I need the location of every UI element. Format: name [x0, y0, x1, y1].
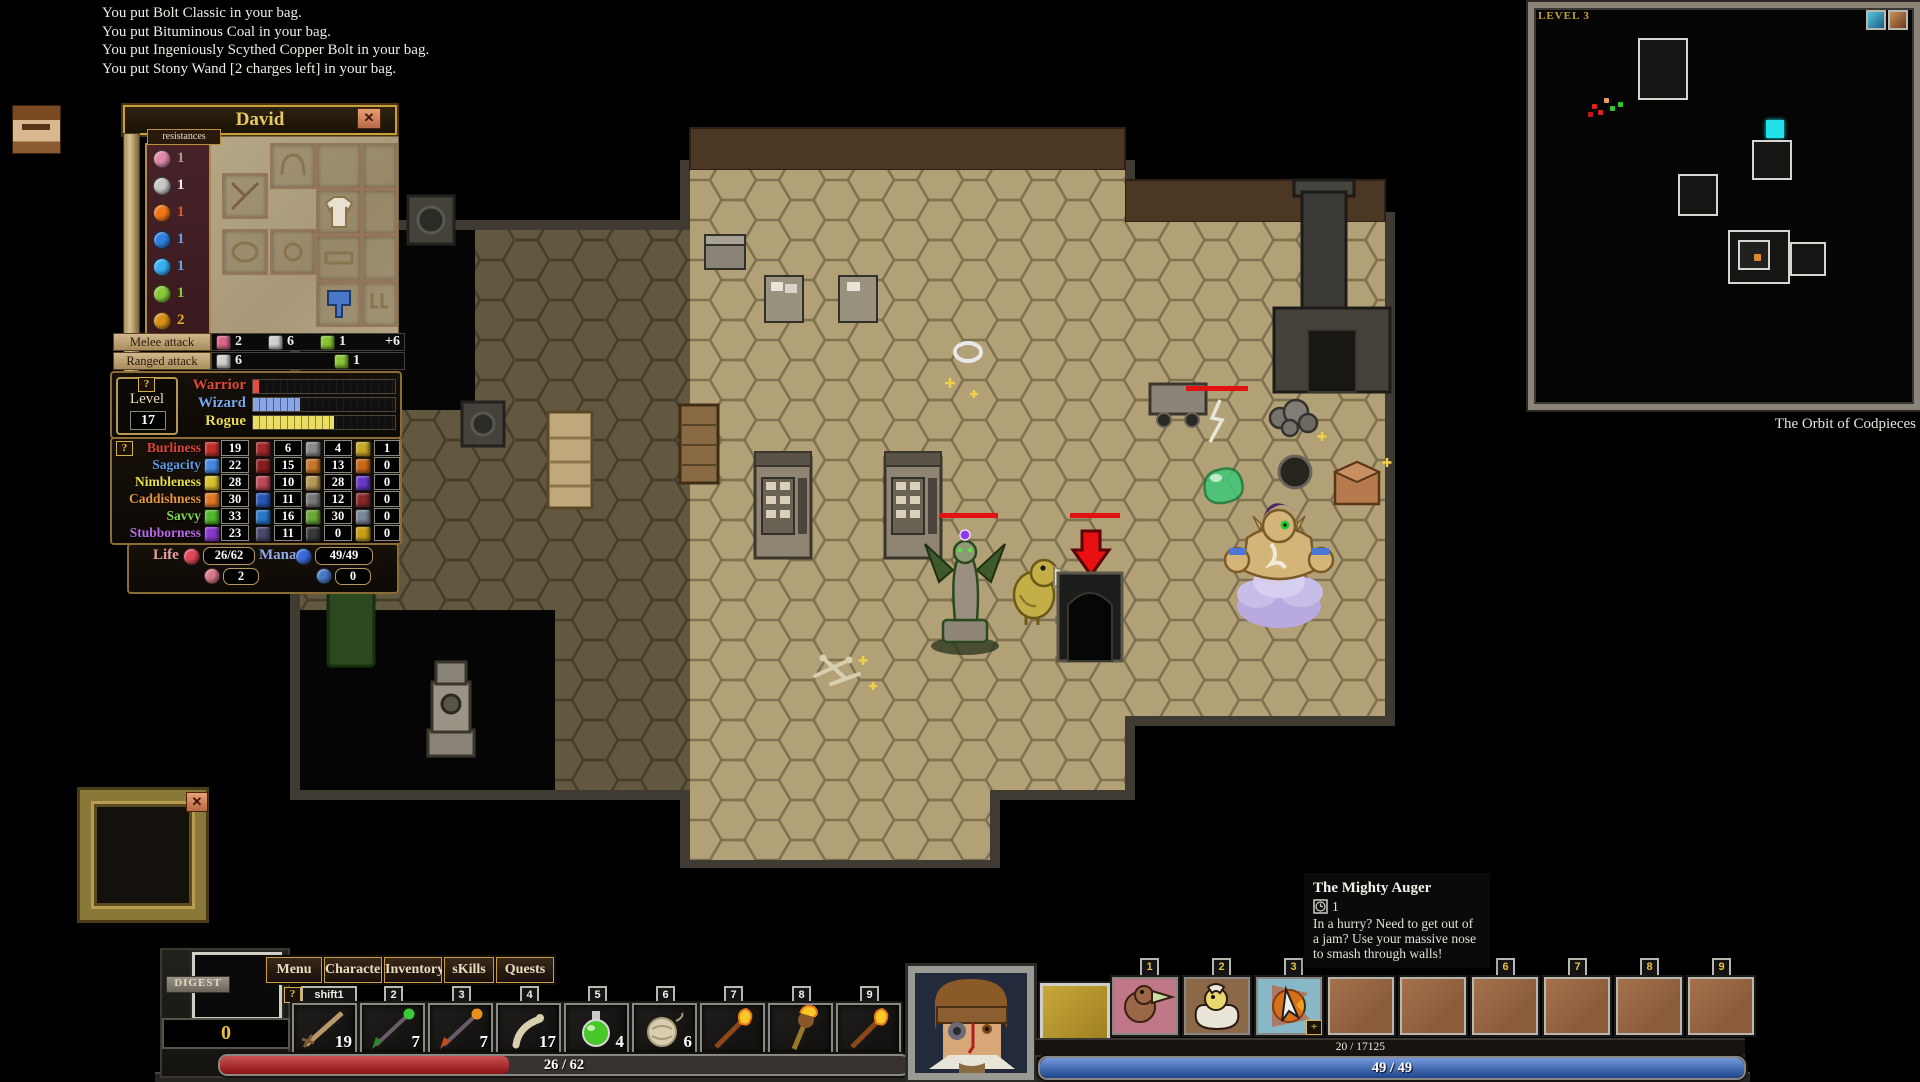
stat-caddishness-label: Caddishness — [116, 491, 201, 507]
stat-burliness-label: Burliness — [116, 440, 201, 456]
level-label: Level — [118, 391, 176, 408]
character-panel: David ✕ resistances — [105, 103, 403, 595]
belt-help-button[interactable]: ? — [284, 987, 301, 1003]
skill-slot-8[interactable] — [1616, 977, 1682, 1035]
life-mana-block: Life 26/62 Mana 49/49 2 0 — [127, 543, 399, 594]
skill-tab-7[interactable]: 7 — [1568, 958, 1587, 977]
life-label: Life — [153, 547, 179, 564]
desk — [705, 235, 745, 269]
floor-grate — [1279, 456, 1311, 488]
wall-machine[interactable] — [408, 196, 454, 244]
resistance-row: 1 — [147, 172, 209, 199]
minimap-player-marker — [1766, 120, 1784, 138]
belt-slot-1[interactable]: 19 — [292, 1003, 357, 1055]
belt-slot[interactable] — [316, 235, 362, 281]
shield-slot[interactable] — [222, 229, 268, 275]
acidic-resist-icon — [153, 285, 171, 303]
tooltip-count: 1 — [1332, 899, 1339, 914]
acidic-damage-icon — [334, 354, 349, 369]
moss-patch — [328, 588, 374, 666]
skill-slot-auger[interactable] — [1112, 977, 1178, 1035]
portrait-face — [915, 973, 1027, 1073]
desk-with-papers — [839, 276, 877, 322]
shorts-item — [318, 283, 360, 325]
skill-tab-9[interactable]: 9 — [1712, 958, 1731, 977]
skill-slot-hatchling[interactable] — [1184, 977, 1250, 1035]
skill-tooltip: The Mighty Auger 1 In a hurry? Need to g… — [1303, 872, 1491, 969]
resistances-panel: 1 1 1 1 1 1 2 — [145, 143, 211, 343]
level-class-block: ? Level 17 Warrior Wizard Rogue — [110, 371, 402, 439]
minimap-enemy-dot — [1598, 110, 1603, 115]
wall-machine[interactable] — [462, 402, 504, 446]
character-button[interactable]: Character — [324, 957, 382, 983]
vending-machine[interactable] — [885, 452, 941, 558]
health-bar: 26 / 62 — [218, 1054, 910, 1076]
burliness-icon — [204, 441, 220, 457]
level-help-button[interactable]: ? — [138, 377, 155, 392]
secondary-stat-icon — [305, 441, 321, 457]
belt-slot-6[interactable]: 6 — [632, 1003, 697, 1055]
minimap-enemy-dot — [1588, 112, 1593, 117]
weapon-slot[interactable] — [222, 173, 268, 219]
minimap-room — [1678, 174, 1718, 216]
player-portrait[interactable] — [908, 966, 1034, 1080]
secondary-stat-icon — [255, 526, 271, 542]
transmutative-resist-icon — [153, 312, 171, 330]
skill-tab-8[interactable]: 8 — [1640, 958, 1659, 977]
class-wizard-xp-bar — [252, 397, 396, 412]
close-icon[interactable]: ✕ — [357, 108, 381, 129]
secondary-stat-icon — [255, 441, 271, 457]
minimap-zoom-button[interactable] — [1866, 10, 1886, 30]
menu-button[interactable]: Menu — [266, 957, 322, 983]
class-warrior-xp-bar — [252, 379, 396, 394]
boots-slot[interactable] — [362, 281, 398, 327]
ring-slot[interactable] — [270, 229, 316, 275]
secondary-stat-value: 0 — [374, 508, 400, 524]
mighty-auger-skill-icon — [1114, 979, 1176, 1033]
minimap-room — [1790, 242, 1826, 276]
secondary-stat-icon — [305, 492, 321, 508]
secondary-stat-icon — [305, 526, 321, 542]
stat-nimbleness-label: Nimbleness — [116, 474, 201, 490]
acidic-damage-icon — [320, 335, 335, 350]
altar-machine[interactable] — [428, 662, 474, 756]
chest-slot[interactable] — [316, 189, 362, 235]
tooltip-body: In a hurry? Need to get out of a jam? Us… — [1313, 916, 1481, 961]
secondary-stat-icon — [355, 509, 371, 525]
secondary-stat-icon — [305, 475, 321, 491]
game-viewport[interactable] — [250, 100, 1550, 890]
digest-counter: 0 — [162, 1018, 290, 1049]
mana-value: 49/49 — [315, 547, 373, 565]
secondary-stat-value: 6 — [274, 440, 302, 456]
belt-slot-2[interactable]: 7 — [360, 1003, 425, 1055]
shirt-item — [318, 191, 360, 233]
minimap-mode-button[interactable] — [1888, 10, 1908, 30]
skills-button[interactable]: sKills — [444, 957, 494, 983]
mana-label: Mana — [259, 547, 297, 564]
class-rogue-label: Rogue — [178, 413, 246, 430]
secondary-stat-value: 30 — [324, 508, 352, 524]
secondary-stat-value: 0 — [324, 525, 352, 541]
flaming-torch-item — [702, 1005, 763, 1053]
mana-regen-value: 0 — [335, 568, 371, 585]
minimap: LEVEL 3 — [1528, 2, 1920, 410]
mana-star-icon — [295, 548, 312, 565]
stat-stubborness-label: Stubborness — [116, 525, 201, 541]
class-wizard-label: Wizard — [178, 395, 246, 412]
minimap-item-dot — [1618, 102, 1623, 107]
secondary-stat-value: 12 — [324, 491, 352, 507]
skill-slot-7[interactable] — [1544, 977, 1610, 1035]
resistance-row: 1 — [147, 226, 209, 253]
piercing-damage-icon — [268, 335, 283, 350]
flaming-torch-item — [838, 1005, 899, 1053]
stat-savvy-value: 33 — [221, 508, 249, 524]
ranged-attack-label: Ranged attack — [113, 352, 211, 370]
stat-sagacity-value: 22 — [221, 457, 249, 473]
sagacity-icon — [204, 458, 220, 474]
skill-slot-5[interactable] — [1400, 977, 1466, 1035]
minimap-caption: The Orbit of Codpieces — [1530, 416, 1916, 433]
quests-button[interactable]: Quests — [496, 957, 554, 983]
mana-bar-text: 49 / 49 — [1040, 1058, 1744, 1078]
crushing-damage-icon — [216, 335, 231, 350]
character-name: David — [236, 109, 285, 130]
melee-bonus: +6 — [385, 334, 400, 350]
desk-with-papers — [765, 276, 803, 322]
secondary-stat-icon — [305, 509, 321, 525]
stat-caddishness-value: 30 — [221, 491, 249, 507]
secondary-stat-value: 16 — [274, 508, 302, 524]
secondary-stat-value: 10 — [274, 474, 302, 490]
life-value: 26/62 — [203, 547, 255, 565]
level-value: 17 — [130, 411, 166, 430]
minimap-enemy-dot — [1592, 104, 1597, 109]
pants-slot[interactable] — [316, 281, 362, 327]
mana-regen-icon — [316, 568, 332, 584]
minimap-room — [1638, 38, 1688, 100]
nimbleness-icon — [204, 475, 220, 491]
stats-block: ? Burliness 19 Sagacity 22 Nimbleness 28… — [110, 437, 402, 545]
tan-door[interactable] — [548, 412, 592, 508]
stat-nimbleness-value: 28 — [221, 474, 249, 490]
secondary-stat-icon — [355, 458, 371, 474]
righteous-resist-icon — [153, 150, 171, 168]
skill-slot-9[interactable] — [1688, 977, 1754, 1035]
level-box: ? Level 17 — [116, 377, 178, 435]
secondary-stat-icon — [355, 526, 371, 542]
secondary-stat-icon — [255, 492, 271, 508]
secondary-stat-icon — [355, 441, 371, 457]
skill-tab-6[interactable]: 6 — [1496, 958, 1515, 977]
stat-burliness-value: 19 — [221, 440, 249, 456]
mana-bar: 49 / 49 — [1038, 1056, 1746, 1080]
life-regen-value: 2 — [223, 568, 259, 585]
jelly-monster[interactable] — [1205, 469, 1243, 504]
armor-slot[interactable] — [316, 143, 362, 189]
secondary-stat-value: 15 — [274, 457, 302, 473]
resistance-row: 1 — [147, 145, 209, 172]
secondary-stat-value: 0 — [374, 525, 400, 541]
close-icon[interactable]: ✕ — [186, 792, 208, 812]
tooltip-title: The Mighty Auger — [1313, 880, 1481, 897]
message-log: You put Bolt Classic in your bag. You pu… — [102, 4, 802, 78]
dark-doorway[interactable] — [1058, 573, 1122, 661]
secondary-stat-value: 11 — [274, 491, 302, 507]
cloak-slot[interactable] — [362, 189, 398, 235]
conflagratory-resist-icon — [153, 204, 171, 222]
heart-icon — [183, 548, 200, 565]
egg-hatch-skill-icon — [1186, 979, 1248, 1033]
secondary-stat-value: 1 — [374, 440, 400, 456]
minimap-item-dot — [1610, 106, 1615, 111]
secondary-stat-value: 0 — [374, 457, 400, 473]
secondary-stat-icon — [255, 458, 271, 474]
voltaic-resist-icon — [153, 258, 171, 276]
belt-slot-3[interactable]: 7 — [428, 1003, 493, 1055]
skill-slot-4[interactable] — [1328, 977, 1394, 1035]
digest-label: DIGEST — [166, 976, 230, 993]
hyperborean-resist-icon — [153, 231, 171, 249]
log-line: You put Stony Wand [2 charges left] in y… — [102, 60, 802, 79]
resistance-row: 2 — [147, 307, 209, 334]
skill-slot-active[interactable]: + — [1256, 977, 1322, 1035]
secondary-stat-value: 13 — [324, 457, 352, 473]
stat-stubborness-value: 23 — [221, 525, 249, 541]
secondary-stat-icon — [305, 458, 321, 474]
skill-tab-3[interactable]: 3 — [1284, 958, 1303, 977]
stubborness-icon — [204, 526, 220, 542]
wooden-door[interactable] — [680, 405, 718, 483]
secondary-stat-value: 4 — [324, 440, 352, 456]
minimap-level-label: LEVEL 3 — [1538, 10, 1590, 22]
secondary-stat-value: 11 — [274, 525, 302, 541]
secondary-stat-icon — [255, 475, 271, 491]
minimap-room — [1752, 140, 1792, 180]
helmet-slot[interactable] — [270, 143, 316, 189]
secondary-stat-value: 28 — [324, 474, 352, 490]
belt-slot-5[interactable]: 4 — [564, 1003, 629, 1055]
belt-slot-9[interactable] — [836, 1003, 901, 1055]
flaming-mace-item — [770, 1005, 831, 1053]
log-line: You put Ingeniously Scythed Copper Bolt … — [102, 41, 802, 60]
minimap-item-dot — [1604, 98, 1609, 103]
savvy-icon — [204, 509, 220, 525]
skill-tab-2[interactable]: 2 — [1212, 958, 1231, 977]
belt-slot-4[interactable]: 17 — [496, 1003, 561, 1055]
resistance-row: 1 — [147, 280, 209, 307]
vending-machine[interactable] — [755, 452, 811, 558]
hud-mini-portrait[interactable] — [12, 105, 61, 154]
piercing-damage-icon — [216, 354, 231, 369]
health-bar-text: 26 / 62 — [220, 1056, 908, 1074]
stat-sagacity-label: Sagacity — [116, 457, 201, 473]
cooldown-clock-icon — [1313, 899, 1328, 914]
caddishness-icon — [204, 492, 220, 508]
resistances-tab: resistances — [147, 129, 221, 145]
log-line: You put Bolt Classic in your bag. — [102, 4, 802, 23]
melee-attack-values: 2 6 1 +6 — [211, 333, 405, 351]
secondary-stat-icon — [355, 475, 371, 491]
resistance-row: 1 — [147, 199, 209, 226]
inventory-button[interactable]: Inventory — [384, 957, 442, 983]
minimap-item-dot — [1754, 254, 1761, 261]
class-warrior-label: Warrior — [178, 377, 246, 394]
melee-attack-label: Melee attack — [113, 333, 211, 351]
stat-savvy-label: Savvy — [116, 508, 201, 524]
skill-slot-6[interactable] — [1472, 977, 1538, 1035]
secondary-stat-value: 0 — [374, 474, 400, 490]
secondary-stat-value: 0 — [374, 491, 400, 507]
equipment-paperdoll — [207, 136, 399, 341]
amulet-slot[interactable] — [362, 235, 398, 281]
offhand-slot[interactable] — [362, 143, 398, 189]
skill-tab-1[interactable]: 1 — [1140, 958, 1159, 977]
class-rogue-xp-bar — [252, 415, 396, 430]
xp-bar: 20 / 17125 — [1035, 1038, 1745, 1057]
belt-slot-8[interactable] — [768, 1003, 833, 1055]
life-regen-icon — [204, 568, 220, 584]
belt-slot-7[interactable] — [700, 1003, 765, 1055]
log-line: You put Bituminous Coal in your bag. — [102, 23, 802, 42]
piercing-resist-icon — [153, 177, 171, 195]
resistance-row: 1 — [147, 253, 209, 280]
secondary-stat-icon — [355, 492, 371, 508]
upgrade-badge: + — [1306, 1020, 1322, 1035]
mini-portrait-eyes — [22, 124, 50, 130]
xp-bar-text: 20 / 17125 — [1035, 1040, 1385, 1055]
ranged-attack-values: 6 1 — [211, 352, 405, 370]
secondary-stat-icon — [255, 509, 271, 525]
